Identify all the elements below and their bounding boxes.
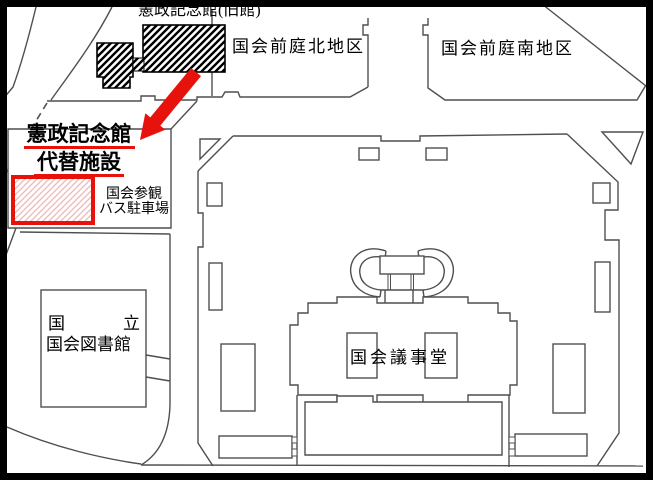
street-edge-south bbox=[141, 465, 643, 466]
annex-building-2 bbox=[209, 263, 222, 310]
library-label-line1-left: 国 bbox=[48, 313, 65, 334]
replacement-facility-label: 憲政記念館 代替施設 bbox=[12, 123, 146, 179]
annex-building-6 bbox=[553, 344, 585, 413]
entrance-pavilion bbox=[380, 256, 424, 274]
south-garden-label: 国会前庭南地区 bbox=[441, 39, 574, 59]
south-annex-right-tab2 bbox=[509, 449, 515, 456]
guide-map: 憲政記念館(旧館) 国会前庭北地区 国会前庭南地区 憲政記念館 代替施設 国会参… bbox=[0, 0, 653, 480]
old-hall-building-west bbox=[97, 43, 133, 88]
north-garden-label: 国会前庭北地区 bbox=[232, 37, 365, 57]
library-label: 国 立 国会図書館 bbox=[46, 313, 142, 355]
old-hall-label: 憲政記念館(旧館) bbox=[138, 2, 261, 20]
replacement-facility-highlight bbox=[13, 177, 93, 223]
bus-parking-label: 国会参観 バス駐車場 bbox=[93, 187, 175, 217]
gate-house-left bbox=[359, 148, 379, 160]
bus-parking-label-line2: バス駐車場 bbox=[93, 202, 175, 217]
replacement-facility-label-line1: 憲政記念館 bbox=[24, 123, 135, 149]
old-hall-building-main bbox=[143, 25, 225, 72]
old-hall-building-link bbox=[133, 58, 144, 71]
south-annex-left bbox=[219, 436, 292, 458]
annex-building-4 bbox=[593, 183, 610, 203]
diet-building-label: 国会議事堂 bbox=[350, 348, 450, 368]
gate-house-right bbox=[426, 148, 447, 160]
library-label-line2: 国会図書館 bbox=[46, 334, 142, 355]
south-annex-left-tab1 bbox=[292, 437, 297, 443]
bus-parking-label-line1: 国会参観 bbox=[93, 187, 175, 202]
annex-building-3 bbox=[221, 344, 255, 411]
library-label-line1-right: 立 bbox=[123, 313, 140, 334]
south-annex-right bbox=[515, 434, 587, 456]
diet-building-south-wing bbox=[305, 396, 502, 455]
south-annex-right-tab1 bbox=[509, 437, 515, 443]
south-annex-left-tab2 bbox=[292, 449, 297, 456]
annex-building-1 bbox=[207, 183, 222, 206]
map-drawing bbox=[0, 0, 653, 480]
annex-building-5 bbox=[595, 262, 610, 312]
replacement-facility-label-line2: 代替施設 bbox=[34, 151, 124, 177]
library-label-line1: 国 立 bbox=[46, 313, 142, 334]
